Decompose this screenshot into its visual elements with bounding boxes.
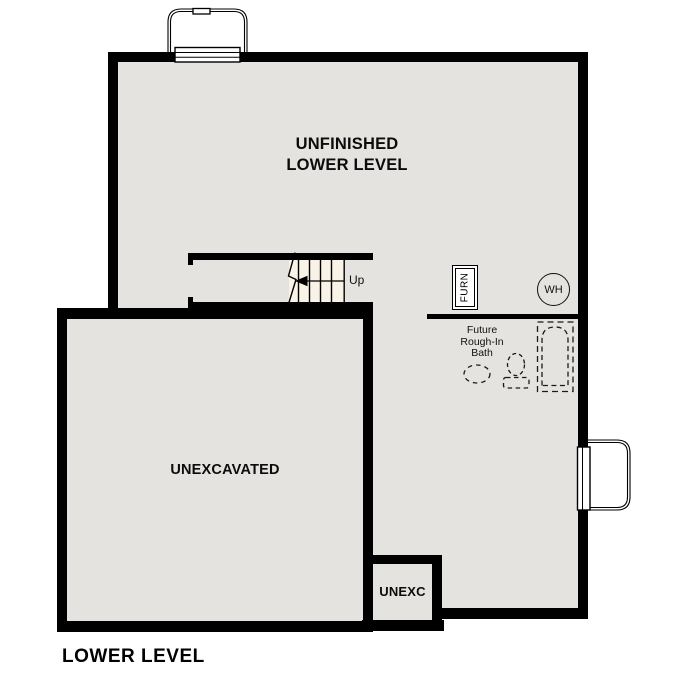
unexcavated-label: UNEXCAVATED [125,462,325,478]
furnace-inner-outline: FURN [455,268,475,307]
unfinished-label-line1: UNFINISHED [247,134,447,155]
wall-stair-bottom [188,302,373,309]
floor-plan: FURN WH UNFINISHED LOWER LEVEL UNEXCAVAT… [0,0,687,687]
furnace-symbol: FURN [452,265,478,310]
window-well-top [168,9,247,53]
unfinished-lower-level-label: UNFINISHED LOWER LEVEL [247,134,447,176]
window-well-right [588,440,630,510]
water-heater-label: WH [544,284,562,296]
unfinished-label-line2: LOWER LEVEL [247,155,447,176]
main-room-floor-upper [118,62,578,309]
wall-unexcavated-top [57,308,373,319]
wall-bottom-main [441,608,588,619]
stairs-up-label: Up [349,273,364,287]
wall-unexcavated-left [57,308,67,632]
wall-end-cap-lower [188,297,193,302]
future-bath-label: Future Rough-In Bath [432,325,532,360]
wall-unexc-bottom [362,620,444,631]
unexc-label: UNEXC [373,584,432,599]
wall-stair-top [188,253,373,260]
wall-end-cap-upper [188,260,193,265]
furnace-label: FURN [460,273,471,303]
wall-unexc-top [363,555,442,564]
plan-title: LOWER LEVEL [62,646,205,668]
wall-unexcavated-right [363,308,373,632]
stair-treads-area [289,260,345,302]
wall-left-upper [108,52,118,309]
wall-right [578,52,588,618]
future-bath-line3: Bath [432,348,532,360]
water-heater-symbol: WH [537,273,570,306]
wall-unexcavated-bottom [57,621,373,632]
future-bath-line1: Future [432,325,532,337]
wall-bath-partition [427,314,578,319]
wall-top [108,52,588,62]
